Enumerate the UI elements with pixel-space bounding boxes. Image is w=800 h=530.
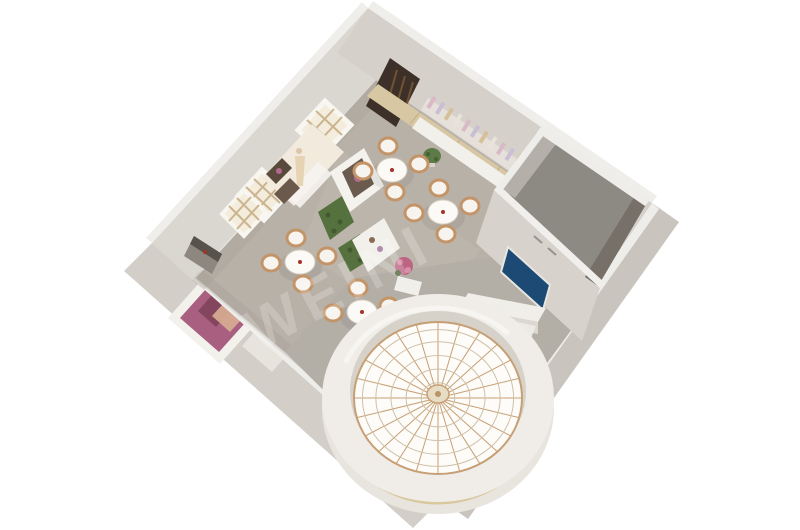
table-centerpiece (390, 168, 394, 172)
hedge-texture (338, 220, 343, 225)
plant-leaf (434, 157, 438, 161)
hedge-texture (326, 213, 331, 218)
chair (386, 184, 404, 200)
chair (461, 198, 479, 214)
dome-cap-center (435, 391, 441, 397)
isometric-render: WEINI (0, 0, 800, 530)
chair (379, 138, 397, 154)
plant-pot (429, 163, 435, 167)
chair (262, 255, 280, 271)
chair (287, 230, 305, 246)
cabinet-accent (203, 250, 207, 254)
photo-accent (276, 168, 282, 174)
mannequin-head (296, 148, 302, 154)
hedge-texture (332, 229, 337, 234)
chair (437, 226, 455, 242)
table-centerpiece (441, 210, 445, 214)
plant-leaf (426, 152, 430, 156)
chair (410, 156, 428, 172)
rendering-canvas: WEINI (0, 0, 800, 530)
table-centerpiece (298, 260, 302, 264)
chair (354, 163, 372, 179)
chair (430, 180, 448, 196)
dome-rotunda (322, 294, 554, 514)
